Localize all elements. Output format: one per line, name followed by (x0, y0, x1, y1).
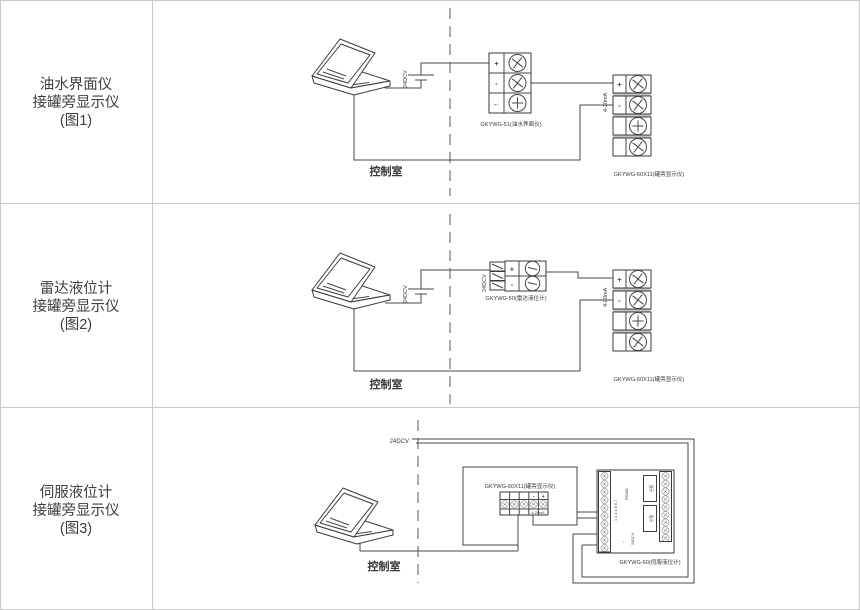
control-room-label: 控制室 (370, 164, 403, 178)
signal-label: 4-20mA (603, 287, 609, 307)
fig2-title-line2: 接罐旁显示仪 (33, 298, 120, 315)
module-label: 显示 (649, 515, 653, 523)
laptop-icon (312, 39, 390, 95)
laptop-icon (315, 488, 393, 544)
fig3-title-line1: 伺服液位计 (40, 484, 113, 501)
signal-label: 4-20mA (603, 92, 609, 112)
box-power-label: 24DCV (631, 532, 635, 545)
terminal-label: + (617, 80, 622, 89)
control-room-label: 控制室 (370, 377, 403, 391)
transmitter-label: GKYWG-51(油水界面仪) (480, 120, 541, 128)
terminal-numbers: 1 2 3 4 5 6 7 (614, 500, 618, 521)
terminal-label: + (542, 494, 545, 500)
terminal-label: + (510, 265, 515, 274)
servo-gauge-box: 显示 显示 1 2 3 4 5 6 7 RS485 24DCV ↑ (597, 470, 674, 553)
terminal-label: + (617, 275, 622, 284)
diagram-fig3: 伺服液位计 接罐旁显示仪 (图3) 24DCV 控制室 GKYWG-60X11(… (33, 420, 695, 583)
laptop-icon (312, 253, 390, 309)
sheet-border (1, 1, 860, 610)
display-terminal-block: - + 4-20mA (500, 492, 548, 515)
fig2-title-line3: (图2) (60, 317, 92, 333)
battery-symbol (408, 289, 434, 294)
wire (546, 272, 613, 278)
wire (421, 270, 490, 289)
rs485-label: RS485 (625, 488, 629, 500)
power-label: 24DCV (390, 439, 409, 445)
fig3-title-line3: (图3) (60, 521, 92, 537)
transmitter-terminal-block: + - (490, 261, 546, 291)
wiring-diagram-sheet: 油水界面仪 接罐旁显示仪 (图1) 24DCV + - ← GKYWG-51(油… (0, 0, 860, 610)
terminal-label: + (494, 59, 499, 68)
display-terminal-block: + - (613, 75, 651, 156)
terminal-label: ← (493, 99, 501, 108)
signal-label: 4-20mA (531, 511, 545, 515)
module-label: 显示 (649, 485, 653, 493)
servo-label: GKYWG-60(伺服液位计) (619, 558, 680, 566)
wire (533, 515, 577, 525)
fig1-title-line2: 接罐旁显示仪 (33, 94, 120, 111)
control-room-label: 控制室 (368, 559, 401, 573)
fig1-title-line1: 油水界面仪 (40, 76, 113, 93)
fig3-title-line2: 接罐旁显示仪 (33, 502, 120, 519)
transmitter-terminal-block: + - ← (489, 53, 531, 113)
power-label: 24DCV (403, 70, 409, 88)
up-arrow-icon: ↑ (623, 540, 625, 544)
wire (421, 63, 489, 75)
block-power-label: 24DCV (482, 274, 488, 292)
display-label: GKYWG-60X11(罐旁显示仪) (485, 482, 556, 490)
wire (354, 300, 613, 371)
transmitter-label: GKYWG-50(雷达液位计) (485, 294, 546, 302)
display-label: GKYWG-60X11(罐旁显示仪) (614, 170, 685, 178)
display-label: GKYWG-60X11(罐旁显示仪) (614, 375, 685, 383)
power-label: 24DCV (403, 285, 409, 303)
diagram-canvas: 油水界面仪 接罐旁显示仪 (图1) 24DCV + - ← GKYWG-51(油… (0, 0, 860, 610)
fig1-title-line3: (图1) (60, 113, 92, 129)
battery-symbol (408, 75, 434, 80)
wire (360, 467, 518, 551)
diagram-fig2: 雷达液位计 接罐旁显示仪 (图2) 24DCV + - 24DCV (33, 214, 685, 404)
diagram-fig1: 油水界面仪 接罐旁显示仪 (图1) 24DCV + - ← GKYWG-51(油… (33, 8, 685, 196)
fig2-title-line1: 雷达液位计 (40, 280, 113, 297)
display-terminal-block: + - (613, 270, 651, 351)
